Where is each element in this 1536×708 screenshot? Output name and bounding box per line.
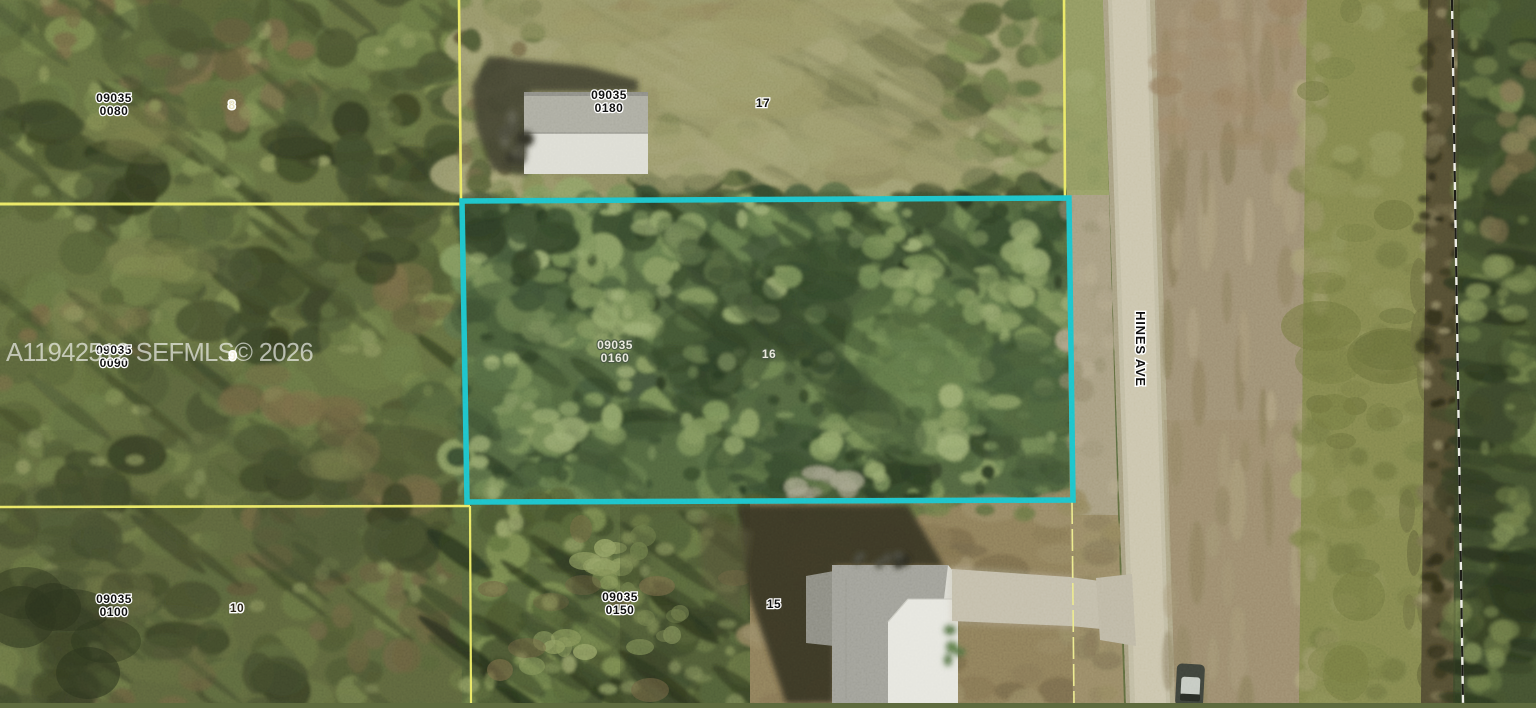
- svg-text:09035: 09035: [597, 338, 633, 352]
- svg-text:17: 17: [756, 96, 770, 110]
- svg-text:0100: 0100: [100, 605, 129, 619]
- svg-text:09035: 09035: [96, 91, 132, 105]
- svg-text:0150: 0150: [606, 603, 635, 617]
- svg-text:0160: 0160: [601, 351, 630, 365]
- svg-text:16: 16: [762, 347, 776, 361]
- svg-text:0180: 0180: [595, 101, 624, 115]
- svg-text:HINES AVE: HINES AVE: [1133, 311, 1148, 387]
- svg-text:15: 15: [767, 597, 781, 611]
- svg-text:A11942512 SEFMLS© 2026: A11942512 SEFMLS© 2026: [6, 339, 313, 367]
- svg-text:8: 8: [228, 98, 235, 112]
- svg-text:09035: 09035: [96, 592, 132, 606]
- svg-text:09035: 09035: [602, 590, 638, 604]
- svg-text:09035: 09035: [591, 88, 627, 102]
- svg-text:10: 10: [230, 601, 244, 615]
- svg-text:0080: 0080: [100, 104, 129, 118]
